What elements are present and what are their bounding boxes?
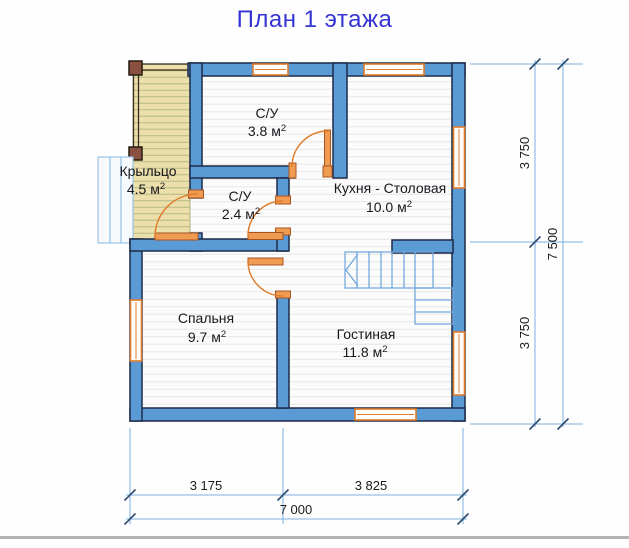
dim-bottom-total: 7 000 xyxy=(280,502,313,517)
area-superscript: 2 xyxy=(255,206,260,217)
step xyxy=(98,157,110,243)
area-value: 9.7 м xyxy=(188,329,221,345)
room-label-living-room: Гостиная xyxy=(337,326,396,342)
porch xyxy=(98,61,190,243)
room-area-kitchen-dining: 10.0 м2 xyxy=(366,199,412,215)
dimensions-right: 3 750 3 750 7 500 xyxy=(470,59,583,430)
room-area-bathroom-large: 3.8 м2 xyxy=(248,123,286,139)
dim-bottom-left: 3 175 xyxy=(190,478,223,493)
window-symbol-top-right xyxy=(364,64,424,75)
dim-right-upper: 3 750 xyxy=(517,137,532,170)
footer-divider xyxy=(0,536,629,539)
wall-bath-kitchen xyxy=(333,63,347,178)
room-area-bathroom-small: 2.4 м2 xyxy=(222,206,260,222)
room-label-bedroom: Спальня xyxy=(178,310,234,326)
dim-bottom-right: 3 825 xyxy=(355,478,388,493)
dim-right-lower: 3 750 xyxy=(517,317,532,350)
wall-bedroom-top xyxy=(130,239,288,251)
wall-bath-divider xyxy=(190,166,295,178)
area-superscript: 2 xyxy=(407,199,412,210)
floor-plan-page: План 1 этажа xyxy=(0,0,629,548)
room-area-porch: 4.5 м2 xyxy=(127,181,165,197)
window-symbol-bottom-living xyxy=(355,409,416,420)
area-value: 2.4 м xyxy=(222,206,255,222)
area-superscript: 2 xyxy=(382,344,387,355)
area-superscript: 2 xyxy=(160,181,165,192)
wall-bedroom-living xyxy=(277,297,289,408)
room-area-living-room: 11.8 м2 xyxy=(342,344,387,360)
floor-plan-drawing: Крыльцо 4.5 м2 С/У 3.8 м2 С/У 2.4 м2 Кух… xyxy=(0,0,629,548)
wall-kitchen-living xyxy=(392,240,453,253)
extension-lines-right xyxy=(470,64,583,424)
window-symbol-right-kitchen xyxy=(454,127,465,188)
dim-right-total: 7 500 xyxy=(545,228,560,261)
window-symbol-top-left xyxy=(253,64,288,75)
room-label-bathroom-large: С/У xyxy=(256,105,279,121)
room-label-bathroom-small: С/У xyxy=(229,188,252,204)
area-value: 4.5 м xyxy=(127,181,160,197)
area-superscript: 2 xyxy=(281,123,286,134)
area-value: 3.8 м xyxy=(248,123,281,139)
area-superscript: 2 xyxy=(221,329,226,340)
porch-post-top xyxy=(129,61,142,75)
window-symbol-left-bedroom xyxy=(131,300,142,361)
room-area-bedroom: 9.7 м2 xyxy=(188,329,226,345)
area-value: 11.8 м xyxy=(342,344,382,360)
dimensions-bottom: 3 175 3 825 7 000 xyxy=(125,428,469,525)
area-value: 10.0 м xyxy=(366,199,407,215)
room-label-porch: Крыльцо xyxy=(119,163,176,179)
window-symbol-right-living xyxy=(454,332,465,395)
room-label-kitchen-dining: Кухня - Столовая xyxy=(334,180,447,196)
